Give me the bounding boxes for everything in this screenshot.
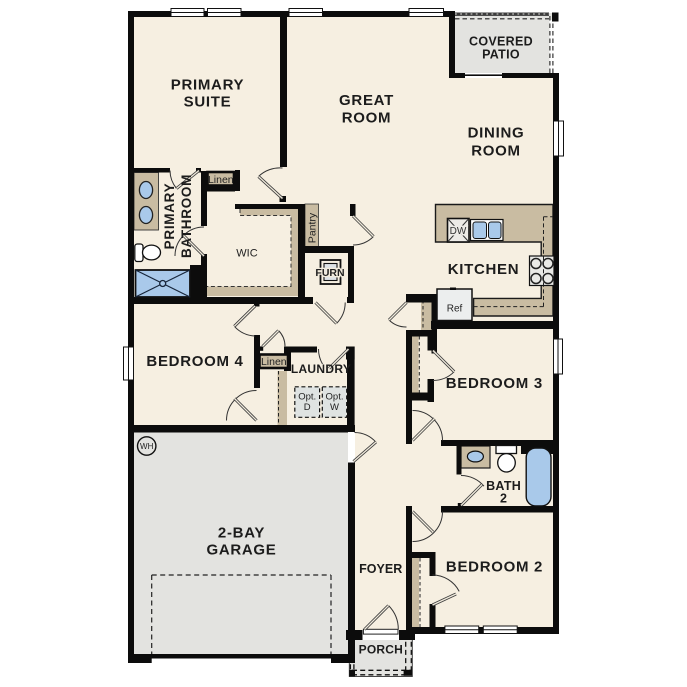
svg-text:W: W [330, 402, 339, 413]
svg-text:Ref: Ref [447, 304, 463, 315]
svg-text:FOYER: FOYER [359, 562, 402, 576]
svg-text:BEDROOM 2: BEDROOM 2 [446, 559, 543, 576]
svg-text:PATIO: PATIO [482, 48, 520, 62]
svg-text:ROOM: ROOM [471, 143, 520, 160]
svg-text:Opt.: Opt. [298, 392, 316, 403]
svg-text:DINING: DINING [468, 125, 525, 142]
svg-text:BATHROOM: BATHROOM [179, 174, 194, 258]
svg-text:GARAGE: GARAGE [206, 542, 276, 559]
svg-text:2: 2 [500, 492, 507, 506]
svg-text:PRIMARY: PRIMARY [162, 183, 177, 250]
svg-text:BEDROOM 3: BEDROOM 3 [446, 375, 543, 392]
svg-text:Linen: Linen [208, 174, 234, 186]
svg-text:LAUNDRY: LAUNDRY [291, 362, 351, 376]
svg-text:WIC: WIC [236, 248, 257, 260]
svg-text:KITCHEN: KITCHEN [448, 261, 520, 278]
svg-text:COVERED: COVERED [469, 35, 533, 49]
svg-text:DW: DW [450, 226, 467, 237]
svg-text:Linen: Linen [261, 356, 287, 368]
svg-text:FURN: FURN [315, 267, 344, 279]
svg-text:Pantry: Pantry [306, 212, 318, 243]
svg-text:GREAT: GREAT [339, 92, 394, 109]
svg-text:Opt.: Opt. [326, 392, 344, 403]
svg-text:PRIMARY: PRIMARY [171, 77, 245, 94]
svg-text:SUITE: SUITE [184, 94, 232, 111]
svg-text:2-BAY: 2-BAY [218, 525, 265, 542]
svg-text:WH: WH [140, 442, 154, 451]
svg-text:PORCH: PORCH [359, 643, 403, 657]
svg-text:ROOM: ROOM [342, 110, 391, 127]
svg-text:D: D [304, 402, 311, 413]
svg-text:BEDROOM 4: BEDROOM 4 [146, 353, 243, 370]
